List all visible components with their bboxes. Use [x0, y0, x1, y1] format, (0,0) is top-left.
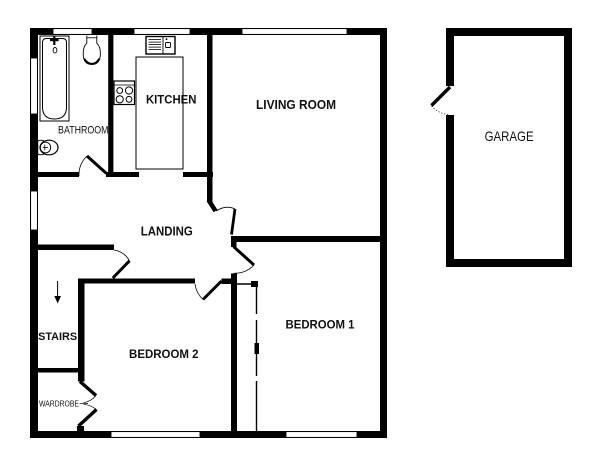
svg-text:KITCHEN: KITCHEN [146, 93, 197, 107]
svg-text:LIVING ROOM: LIVING ROOM [256, 97, 336, 112]
svg-text:LANDING: LANDING [141, 224, 193, 239]
svg-text:GARAGE: GARAGE [485, 128, 534, 144]
svg-text:BEDROOM 2: BEDROOM 2 [129, 347, 199, 361]
svg-text:STAIRS: STAIRS [38, 331, 77, 343]
svg-text:BEDROOM 1: BEDROOM 1 [286, 317, 355, 331]
svg-text:WARDROBE: WARDROBE [39, 399, 79, 409]
svg-text:BATHROOM: BATHROOM [58, 125, 109, 137]
